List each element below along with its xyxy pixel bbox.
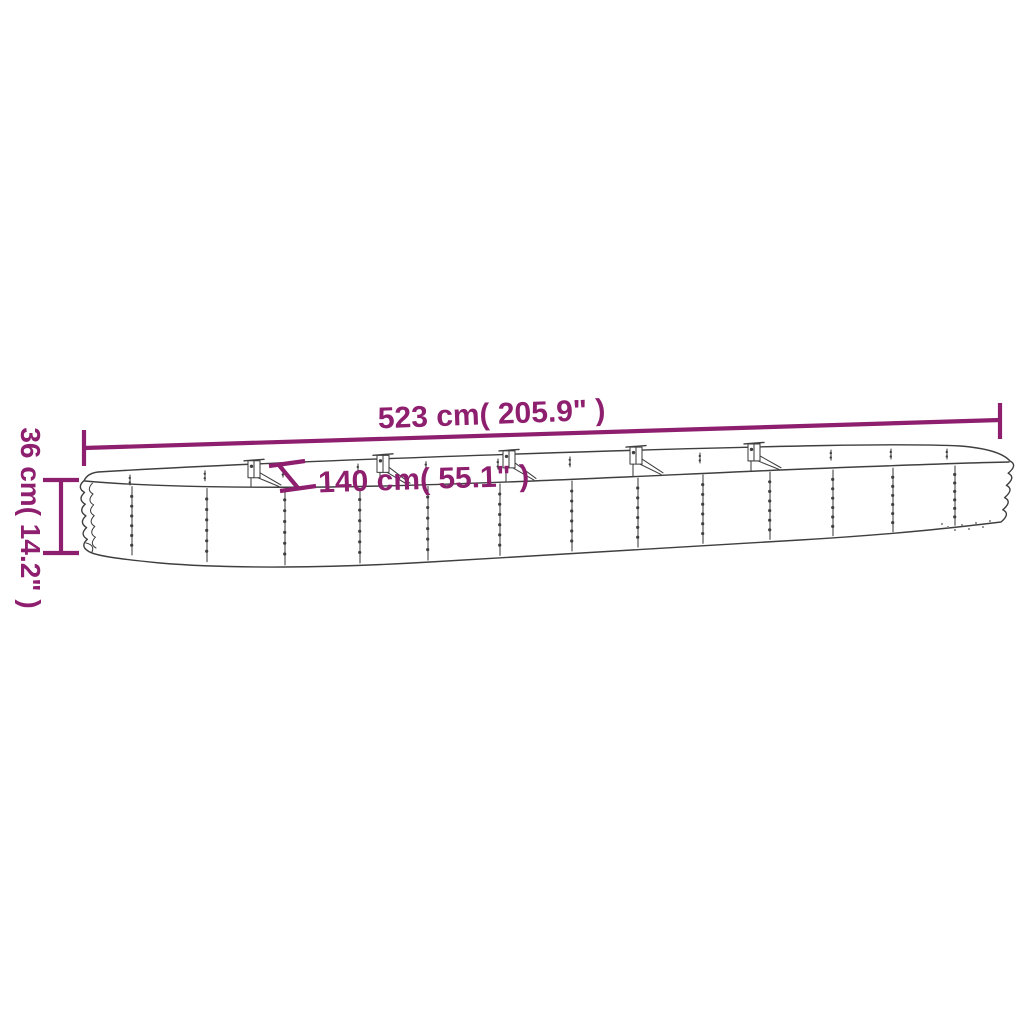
rivet-dot <box>699 459 701 461</box>
rivet-dot <box>358 551 361 554</box>
product-dimension-image: 523 cm( 205.9" ) 140 cm( 55.1" ) 36 cm( … <box>0 0 1024 1024</box>
rivet-dot <box>283 542 286 545</box>
texture-speck <box>954 529 956 531</box>
rivet-dot <box>701 512 704 515</box>
rivet-dot <box>946 451 948 453</box>
texture-speck <box>941 523 943 525</box>
rivet-dot <box>831 525 834 528</box>
texture-speck <box>968 528 970 530</box>
rivet-dot <box>570 519 573 522</box>
texture-speck <box>961 524 963 526</box>
rivet-dot <box>701 493 704 496</box>
rivet-dot <box>891 476 894 479</box>
rivet-dot <box>498 523 501 526</box>
rivet-dot <box>768 480 771 483</box>
rivet-dot <box>426 516 429 519</box>
rivet-dot <box>283 498 286 501</box>
rivet-dot <box>498 503 501 506</box>
rivet-dot <box>283 509 286 512</box>
clip-rivet <box>379 459 382 462</box>
rivet-dot <box>283 520 286 523</box>
rivet-dot <box>891 485 894 488</box>
rivet-dot <box>768 499 771 502</box>
clip-rivet <box>750 448 753 451</box>
length-dimension: 523 cm( 205.9" ) <box>84 394 1000 466</box>
rivet-dot <box>636 516 639 519</box>
rivet-dot <box>891 512 894 515</box>
rivet-dot <box>891 521 894 524</box>
rivet-dot <box>205 529 208 532</box>
rivet-dot <box>953 473 956 476</box>
garden-bed-drawing <box>80 442 1013 567</box>
rivet-dot <box>701 483 704 486</box>
rivet-dot <box>426 506 429 509</box>
rivet-dot <box>358 498 361 501</box>
rivet-dot <box>768 519 771 522</box>
rivet-dot <box>204 473 206 475</box>
rivet-dot <box>130 514 133 517</box>
rivet-dot <box>831 506 834 509</box>
texture-speck <box>989 520 991 522</box>
rivet-dot <box>570 489 573 492</box>
rivet-dot <box>570 539 573 542</box>
clip-rivet <box>250 465 253 468</box>
rivet-dot <box>570 499 573 502</box>
rivet-dot <box>890 455 892 457</box>
rivet-dot <box>953 481 956 484</box>
rivet-dot <box>946 455 948 457</box>
rivet-dot <box>636 486 639 489</box>
clip-rivet <box>632 451 635 454</box>
rivet-dot <box>130 495 133 498</box>
rivet-dot <box>570 529 573 532</box>
bed-panel-details <box>129 442 992 564</box>
height-dimension: 36 cm( 14.2" ) <box>15 427 79 608</box>
texture-speck <box>982 526 984 528</box>
rivet-dot <box>701 532 704 535</box>
rivet-dot <box>768 528 771 531</box>
bed-outline <box>80 445 1013 567</box>
rivet-dot <box>830 456 832 458</box>
rivet-dot <box>283 552 286 555</box>
rivet-dot <box>636 496 639 499</box>
rivet-dot <box>129 481 131 483</box>
rivet-dot <box>831 515 834 518</box>
rivet-dot <box>205 539 208 542</box>
rivet-dot <box>498 513 501 516</box>
rivet-dot <box>130 505 133 508</box>
rivet-dot <box>831 478 834 481</box>
rivet-dot <box>570 509 573 512</box>
rivet-dot <box>498 533 501 536</box>
rivet-dot <box>701 503 704 506</box>
rivet-dot <box>569 463 571 465</box>
rivet-dot <box>953 515 956 518</box>
rivet-dot <box>953 498 956 501</box>
rivet-dot <box>891 494 894 497</box>
width-dimension-label: 140 cm( 55.1" ) <box>318 460 530 500</box>
texture-speck <box>947 526 949 528</box>
rivet-dot <box>205 497 208 500</box>
rivet-dot <box>830 452 832 454</box>
garden-bed-dimension-diagram: 523 cm( 205.9" ) 140 cm( 55.1" ) 36 cm( … <box>0 0 1024 1024</box>
rivet-dot <box>130 544 133 547</box>
rivet-dot <box>498 544 501 547</box>
rivet-dot <box>953 507 956 510</box>
length-dimension-label: 523 cm( 205.9" ) <box>377 394 606 436</box>
rivet-dot <box>426 527 429 530</box>
rivet-dot <box>569 459 571 461</box>
rivet-dot <box>283 531 286 534</box>
rivet-dot <box>636 526 639 529</box>
rivet-dot <box>768 490 771 493</box>
width-dimension: 140 cm( 55.1" ) <box>269 460 530 500</box>
rivet-dot <box>636 506 639 509</box>
clip-rivet <box>505 455 508 458</box>
bed-left-corrugation-inner <box>89 483 96 548</box>
rivet-dot <box>636 536 639 539</box>
rivet-dot <box>890 451 892 453</box>
rivet-dot <box>129 477 131 479</box>
rivet-dot <box>701 522 704 525</box>
rivet-dot <box>205 518 208 521</box>
rivet-dot <box>205 550 208 553</box>
rivet-dot <box>130 524 133 527</box>
rivet-dot <box>953 490 956 493</box>
rivet-dot <box>831 497 834 500</box>
rivet-dot <box>205 508 208 511</box>
rivet-dot <box>426 548 429 551</box>
rivet-dot <box>358 509 361 512</box>
texture-speck <box>975 522 977 524</box>
rivet-dot <box>358 530 361 533</box>
rivet-dot <box>358 540 361 543</box>
rivet-dot <box>204 477 206 479</box>
width-dimension-top-tick <box>269 461 305 466</box>
rivet-dot <box>426 538 429 541</box>
rivet-dot <box>891 503 894 506</box>
rivet-dot <box>358 519 361 522</box>
rivet-dot <box>768 509 771 512</box>
height-dimension-label: 36 cm( 14.2" ) <box>15 427 46 608</box>
rivet-dot <box>831 487 834 490</box>
rivet-dot <box>699 455 701 457</box>
rivet-dot <box>130 534 133 537</box>
rivet-dot <box>426 495 429 498</box>
